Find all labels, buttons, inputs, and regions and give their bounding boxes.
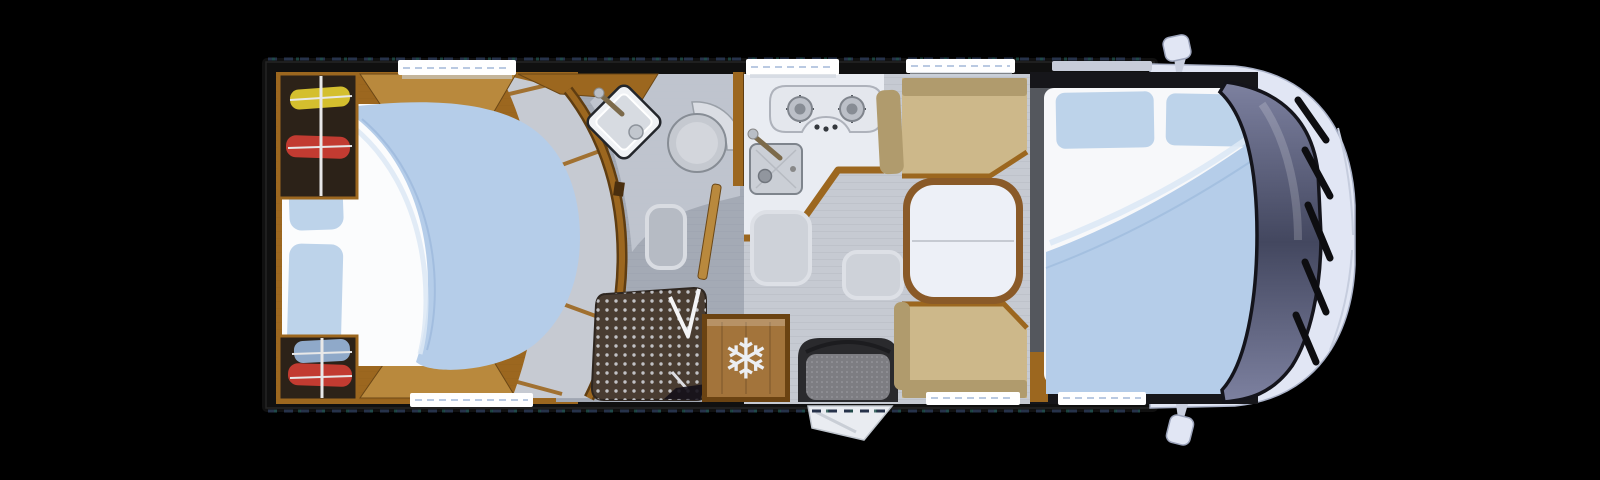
bench-top-side-back xyxy=(876,89,904,174)
bath-mat xyxy=(647,206,685,268)
fridge-highlight xyxy=(707,319,785,326)
mirror-blade xyxy=(1162,34,1192,63)
entry-area xyxy=(798,338,898,440)
faucet-base xyxy=(748,129,758,139)
mirror-blade xyxy=(1165,414,1195,447)
garment-red-bottom xyxy=(288,363,353,387)
wardrobe-top xyxy=(279,74,357,198)
entry-seat-fabric-speckle xyxy=(806,354,890,400)
sink-drain xyxy=(759,170,772,183)
split-table xyxy=(903,178,1023,304)
floor-mat-small xyxy=(844,252,902,298)
wardrobe-bottom xyxy=(279,336,357,400)
window-dinette-top xyxy=(906,59,1015,76)
window-kitchen-top xyxy=(746,59,839,78)
hob-knob xyxy=(832,124,837,129)
hob-knob xyxy=(814,124,819,129)
window-bedroom-top xyxy=(398,60,516,79)
bathroom-kitchen-wall xyxy=(733,72,744,186)
refrigerator: ❄ xyxy=(702,314,790,402)
front-bed xyxy=(1030,72,1258,404)
shower-floor-dots xyxy=(592,288,706,400)
floorplan-canvas: ❄ xyxy=(0,0,1600,480)
toilet-seat xyxy=(676,122,718,164)
window-entry-bottom xyxy=(926,392,1020,405)
motorhome-floorplan: ❄ xyxy=(0,0,1600,480)
sink-knob xyxy=(790,166,796,172)
bench-top-backrest xyxy=(902,78,1027,96)
wing-mirror-bottom xyxy=(1165,404,1195,446)
snowflake-icon: ❄ xyxy=(723,328,770,393)
hob-knob xyxy=(823,126,828,131)
window-bedroom-bottom xyxy=(410,393,533,407)
front-pillow-left xyxy=(1056,91,1155,149)
floor-mat-large xyxy=(752,212,810,284)
window-frontbed-bottom xyxy=(1058,392,1146,405)
roof-edge-strip xyxy=(1052,61,1152,71)
door-hinge xyxy=(613,181,625,196)
shower-tray xyxy=(592,288,706,400)
bench-bottom-side-back xyxy=(894,302,910,390)
faucet-base xyxy=(594,88,604,98)
washbasin-drain xyxy=(629,125,643,139)
